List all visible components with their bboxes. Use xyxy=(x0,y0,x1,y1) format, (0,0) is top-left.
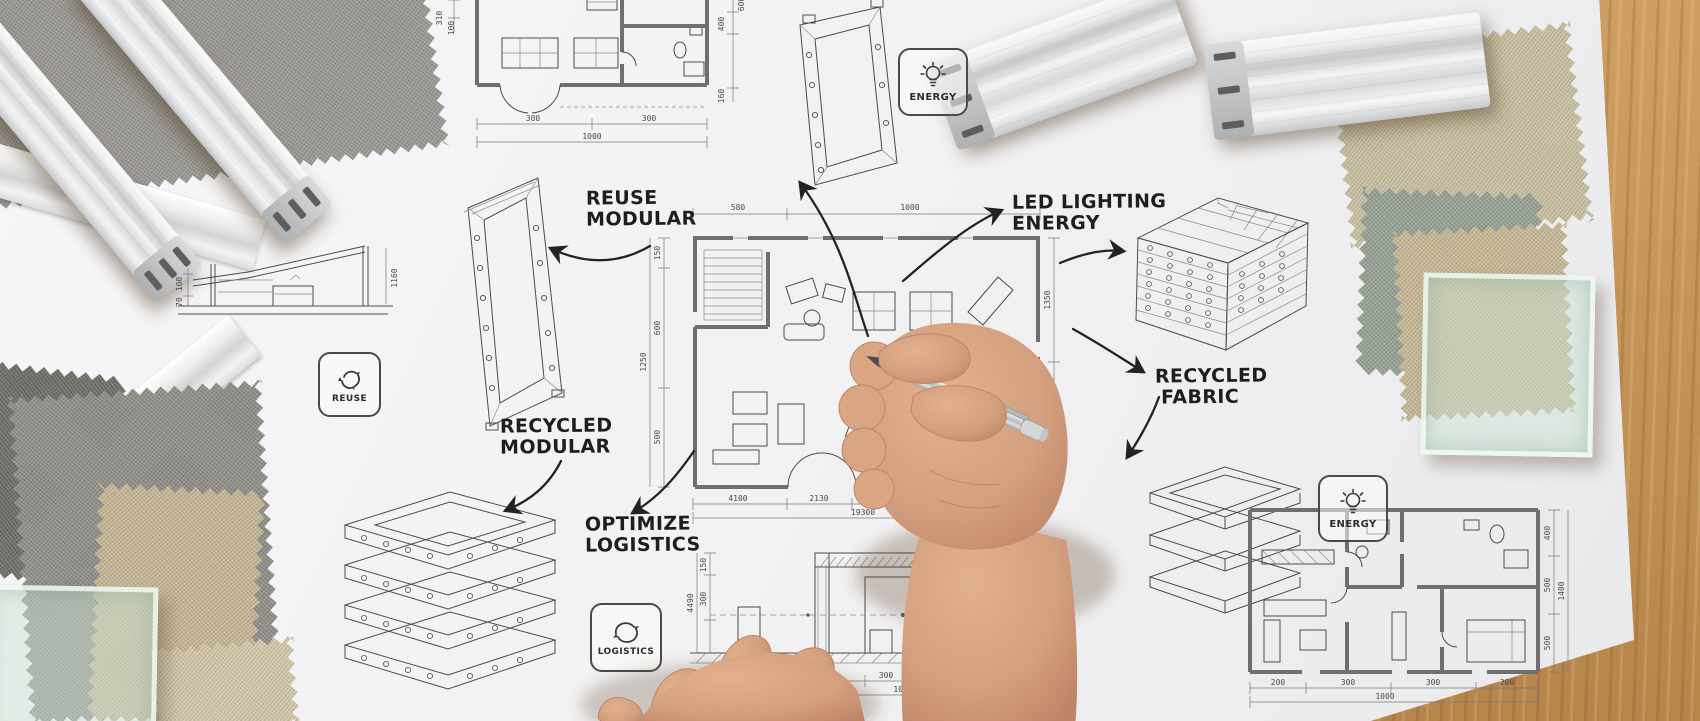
index-finger xyxy=(879,334,970,384)
hands-and-pen xyxy=(0,0,1700,721)
knuckle xyxy=(842,428,886,472)
knuckle xyxy=(854,469,894,509)
right-hand xyxy=(839,323,1077,721)
architect-desk-scene: 310 100 600 400 160 300 300 1000 100 70 … xyxy=(0,0,1700,721)
knuckle xyxy=(839,385,885,431)
